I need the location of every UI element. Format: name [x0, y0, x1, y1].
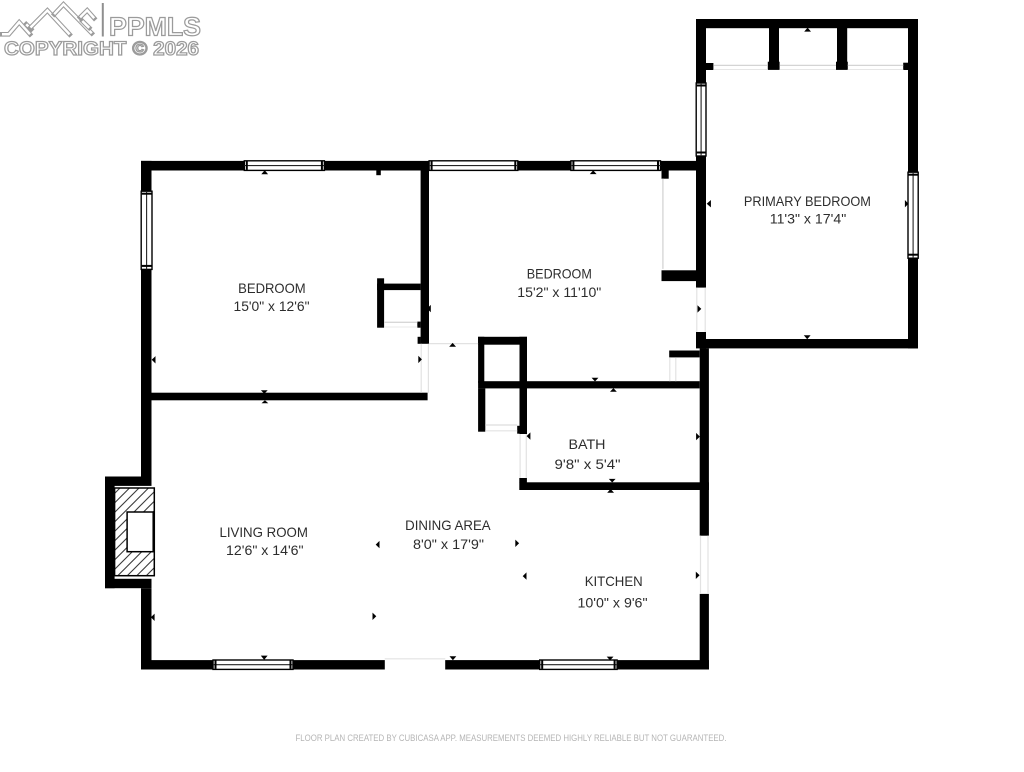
svg-text:PRIMARY BEDROOM: PRIMARY BEDROOM	[744, 193, 871, 209]
svg-text:12'6" x 14'6": 12'6" x 14'6"	[226, 542, 304, 558]
svg-text:15'2" x 11'10": 15'2" x 11'10"	[517, 284, 601, 300]
svg-text:BATH: BATH	[569, 436, 606, 452]
svg-text:BEDROOM: BEDROOM	[527, 266, 592, 282]
svg-text:10'0" x 9'6": 10'0" x 9'6"	[578, 594, 648, 610]
svg-text:8'0" x 17'9": 8'0" x 17'9"	[413, 536, 484, 552]
svg-text:LIVING ROOM: LIVING ROOM	[219, 524, 308, 540]
svg-text:KITCHEN: KITCHEN	[585, 573, 643, 589]
svg-text:BEDROOM: BEDROOM	[238, 280, 306, 296]
svg-text:9'8" x 5'4": 9'8" x 5'4"	[555, 456, 621, 472]
svg-text:11'3" x 17'4": 11'3" x 17'4"	[770, 210, 847, 226]
svg-text:FLOOR PLAN CREATED BY CUBICASA: FLOOR PLAN CREATED BY CUBICASA APP. MEAS…	[296, 733, 727, 743]
svg-text:COPYRIGHT © 2026: COPYRIGHT © 2026	[4, 39, 199, 60]
svg-text:PPMLS: PPMLS	[109, 14, 201, 42]
svg-text:15'0" x 12'6": 15'0" x 12'6"	[234, 298, 310, 314]
svg-text:DINING AREA: DINING AREA	[405, 517, 491, 533]
